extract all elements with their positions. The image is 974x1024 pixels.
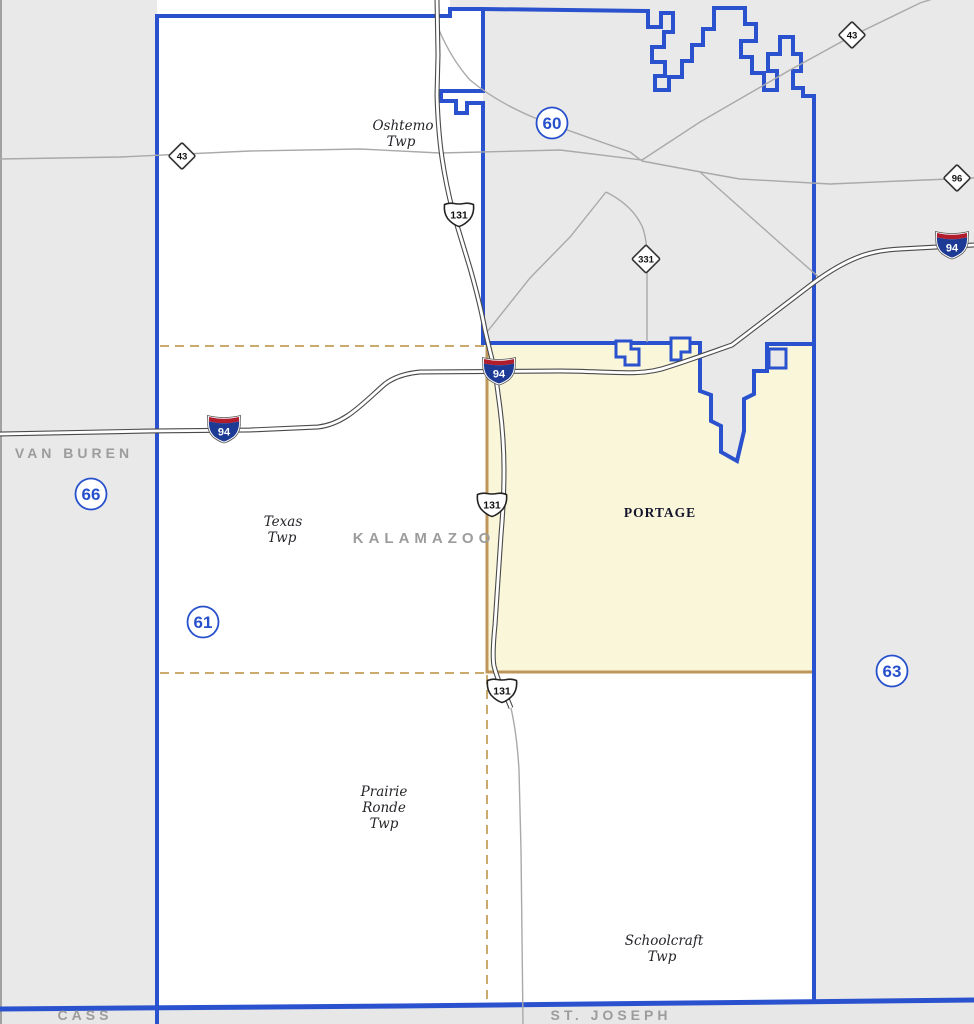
district-66-marker: 66: [76, 479, 107, 510]
m43-shield-label: 43: [177, 152, 188, 163]
us131-shield-label: 131: [450, 210, 468, 222]
us131-shield-label: 131: [483, 500, 501, 512]
township-label-line: Twp: [370, 816, 399, 832]
township-label-line: Twp: [387, 134, 416, 150]
m331-shield-label: 331: [638, 255, 655, 266]
township-label-line: Prairie: [360, 784, 408, 800]
i94-shield-label: 94: [218, 427, 231, 439]
district-60-marker: 60: [537, 108, 568, 139]
township-label-line: Twp: [648, 949, 677, 965]
township-label-line: Twp: [268, 530, 297, 546]
township-label-line: Texas: [264, 514, 303, 530]
m96-shield-label: 96: [952, 174, 963, 185]
district-61-marker: 61: [188, 607, 219, 638]
us131-shield-label: 131: [493, 686, 511, 698]
township-label-line: Ronde: [361, 800, 406, 816]
district-63-marker: 63: [877, 656, 908, 687]
district-61-label: 61: [194, 613, 213, 632]
county-label-st-joseph: ST. JOSEPH: [551, 1007, 672, 1023]
boundary-pocket-square: [769, 349, 786, 368]
m43-shield-label: 43: [847, 31, 858, 42]
district-61-area-upper: [157, 9, 483, 345]
county-label-kalamazoo: KALAMAZOO: [353, 530, 496, 547]
district-66-label: 66: [82, 485, 101, 504]
i94-shield-label: 94: [946, 243, 959, 255]
i94-shield-label: 94: [493, 369, 506, 381]
city-label-portage: PORTAGE: [624, 505, 696, 520]
map-canvas: 131 131 131 94 94 94: [0, 0, 974, 1024]
district-60-label: 60: [543, 114, 562, 133]
township-label-line: Schoolcraft: [625, 933, 704, 949]
township-label-line: Oshtemo: [372, 118, 433, 134]
district-map-svg: 131 131 131 94 94 94: [0, 0, 974, 1024]
county-label-cass: CASS: [58, 1007, 113, 1023]
district-63-label: 63: [883, 662, 902, 681]
county-label-van-buren: VAN BUREN: [15, 445, 133, 461]
